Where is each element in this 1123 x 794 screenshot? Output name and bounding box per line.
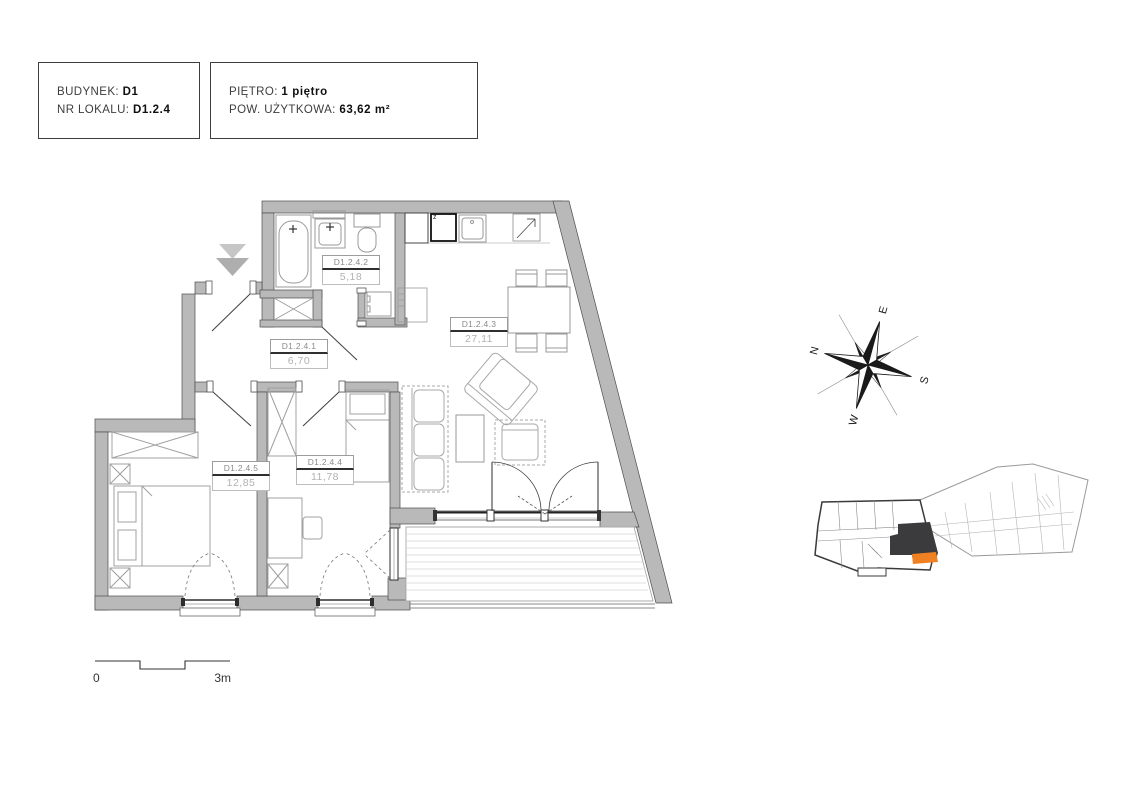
toilet-icon xyxy=(354,214,380,252)
compass-n-label: N xyxy=(808,345,822,356)
dining-table xyxy=(508,270,570,352)
floor-plan-svg: N E S W xyxy=(0,0,1123,794)
bedroom4-furniture xyxy=(268,388,389,588)
room-label-bathroom: D1.2.4.2 5,18 xyxy=(322,255,380,285)
scale-bar: 0 3m xyxy=(93,661,231,685)
hall-closet xyxy=(274,298,313,320)
room-id: D1.2.4.4 xyxy=(296,455,354,470)
building-overview xyxy=(815,464,1088,576)
bathtub-icon xyxy=(276,215,311,287)
bedroom5-furniture xyxy=(110,432,210,588)
room-id: D1.2.4.3 xyxy=(450,317,508,332)
room-label-bedroom-2: D1.2.4.4 11,78 xyxy=(296,455,354,485)
room-area: 5,18 xyxy=(322,270,380,285)
compass-s-label: S xyxy=(918,375,931,385)
room-area: 11,78 xyxy=(296,470,354,485)
room-label-living-room: D1.2.4.3 27,11 xyxy=(450,317,508,347)
kitchen-shaft xyxy=(405,213,428,243)
room-area: 12,85 xyxy=(212,476,270,491)
living-window-band xyxy=(433,462,601,521)
compass-e-label: E xyxy=(877,305,890,315)
appliance-letter-label: z xyxy=(433,214,437,221)
room-area: 27,11 xyxy=(450,332,508,347)
terrace-door xyxy=(364,528,398,580)
armchair xyxy=(495,420,545,465)
room-label-hall: D1.2.4.1 6,70 xyxy=(270,339,328,369)
kitchen-sink-icon xyxy=(459,215,486,242)
room-id: D1.2.4.2 xyxy=(322,255,380,270)
compass-rose-icon: N E S W xyxy=(768,265,969,466)
washing-machine-icon xyxy=(367,292,391,316)
room-area: 6,70 xyxy=(270,354,328,369)
room-id: D1.2.4.5 xyxy=(212,461,270,476)
compass-w-label: W xyxy=(847,413,861,427)
terrace xyxy=(406,527,655,608)
coffee-table xyxy=(456,415,484,462)
floorplan-page: BUDYNEK: D1 NR LOKALU: D1.2.4 PIĘTRO: 1 … xyxy=(0,0,1123,794)
sofa xyxy=(402,386,448,492)
highlighted-balcony xyxy=(912,552,938,564)
washbasin-icon xyxy=(313,211,345,248)
scale-end-label: 3m xyxy=(214,671,231,685)
kitchen-counter xyxy=(398,243,550,322)
scale-start-label: 0 xyxy=(93,671,100,685)
stove-icon xyxy=(513,214,540,241)
entrance-arrows-icon xyxy=(216,244,249,276)
room-id: D1.2.4.1 xyxy=(270,339,328,354)
room-label-bedroom-1: D1.2.4.5 12,85 xyxy=(212,461,270,491)
